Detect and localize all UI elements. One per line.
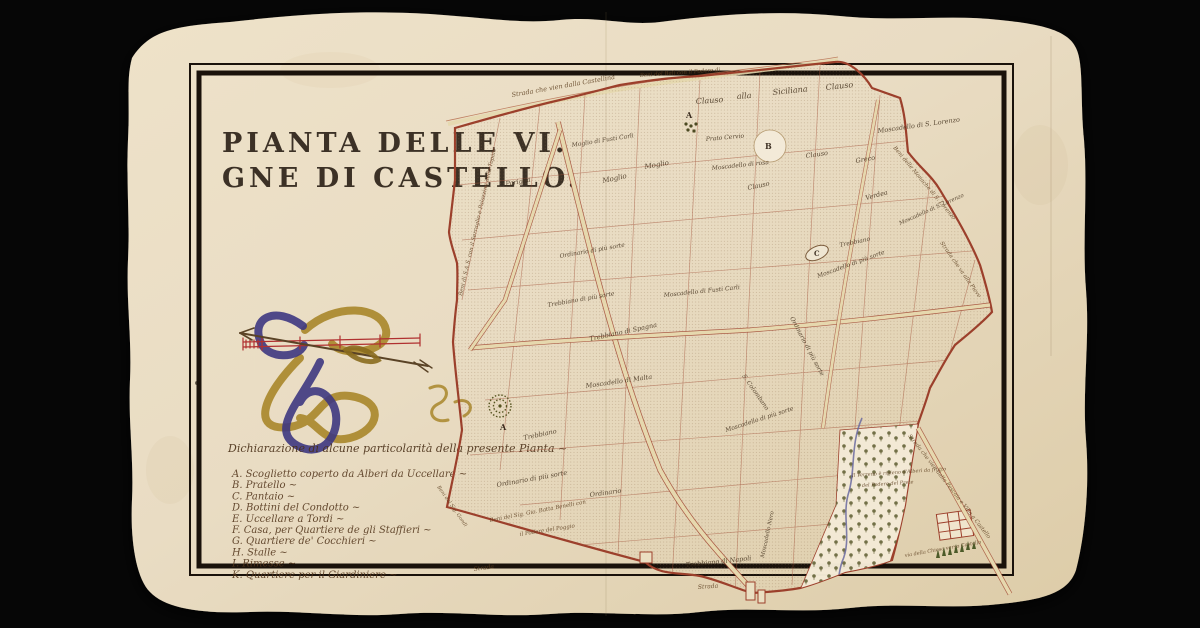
legend-item: E. Uccellare a Tordi ~: [231, 514, 344, 525]
legend-item: I. Rimesse ~: [231, 559, 296, 570]
parcel-label: Clauso: [696, 95, 724, 106]
legend-item: F. Casa, per Quartiere de gli Staffieri …: [231, 525, 432, 536]
marker-C: C: [814, 249, 820, 258]
legend-item: B. Pratello ~: [231, 480, 297, 491]
legend-item: K. Quartiere per il Giardiniere ~: [231, 570, 397, 581]
legend-item: G. Quartiere de' Cocchieri ~: [232, 536, 377, 547]
marker-A-top: A: [685, 110, 693, 120]
marker-B: B: [765, 141, 772, 151]
road-label: Strada: [698, 583, 719, 591]
legend-item: D. Bottini del Condotto ~: [231, 503, 360, 514]
legend-item: A. Scoglietto coperto da Alberi da Uccel…: [231, 469, 467, 480]
marker-A: A: [499, 422, 507, 432]
legend-item: C. Pantaio ~: [232, 491, 295, 502]
antique-map-scan: PIANTA DELLE VI. GNE DI CASTELLO.: [0, 0, 1200, 628]
legend-item: H. Stalle ~: [231, 547, 288, 558]
parcel-label: alla: [737, 91, 752, 101]
